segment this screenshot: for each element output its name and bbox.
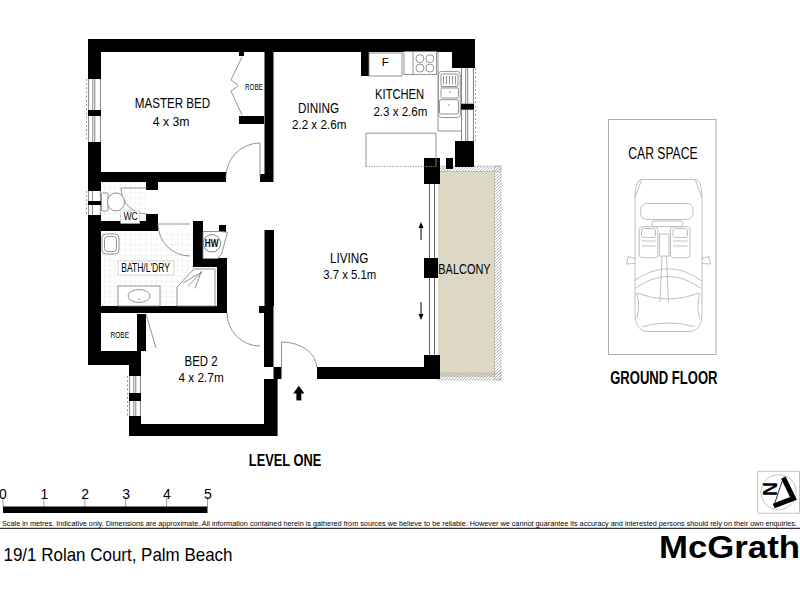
svg-text:McGrath: McGrath [659, 530, 800, 564]
svg-text:3: 3 [122, 486, 130, 502]
svg-text:ROBE: ROBE [245, 82, 263, 92]
svg-text:5: 5 [204, 486, 212, 502]
svg-text:BALCONY: BALCONY [438, 261, 491, 277]
svg-text:19/1 Rolan Court, Palm Beach: 19/1 Rolan Court, Palm Beach [4, 544, 233, 565]
svg-text:KITCHEN: KITCHEN [375, 86, 424, 102]
svg-text:4 x 3m: 4 x 3m [153, 114, 190, 129]
svg-text:GROUND FLOOR: GROUND FLOOR [610, 367, 717, 388]
svg-text:LEVEL ONE: LEVEL ONE [249, 451, 321, 470]
svg-text:4: 4 [163, 486, 171, 502]
svg-text:1: 1 [40, 486, 48, 502]
svg-text:ROBE: ROBE [111, 330, 130, 340]
svg-text:2: 2 [81, 486, 89, 502]
svg-text:Scale in metres. Indicative on: Scale in metres. Indicative only. Dimens… [2, 519, 797, 528]
svg-text:BATH/L'DRY: BATH/L'DRY [121, 261, 170, 275]
svg-text:CAR SPACE: CAR SPACE [628, 145, 697, 162]
svg-text:HW: HW [205, 238, 219, 249]
svg-text:4 x 2.7m: 4 x 2.7m [179, 370, 224, 385]
svg-text:F: F [382, 56, 389, 68]
svg-text:WC: WC [123, 210, 138, 222]
svg-text:MASTER BED: MASTER BED [135, 95, 210, 111]
svg-text:2.2 x 2.6m: 2.2 x 2.6m [292, 117, 347, 132]
svg-text:DINING: DINING [298, 100, 339, 116]
svg-text:BED 2: BED 2 [185, 353, 218, 369]
svg-text:2.3 x 2.6m: 2.3 x 2.6m [373, 104, 427, 119]
svg-text:3.7 x 5.1m: 3.7 x 5.1m [323, 267, 376, 282]
svg-text:LIVING: LIVING [330, 249, 369, 266]
svg-text:0: 0 [0, 486, 7, 502]
svg-text:N: N [759, 482, 781, 496]
